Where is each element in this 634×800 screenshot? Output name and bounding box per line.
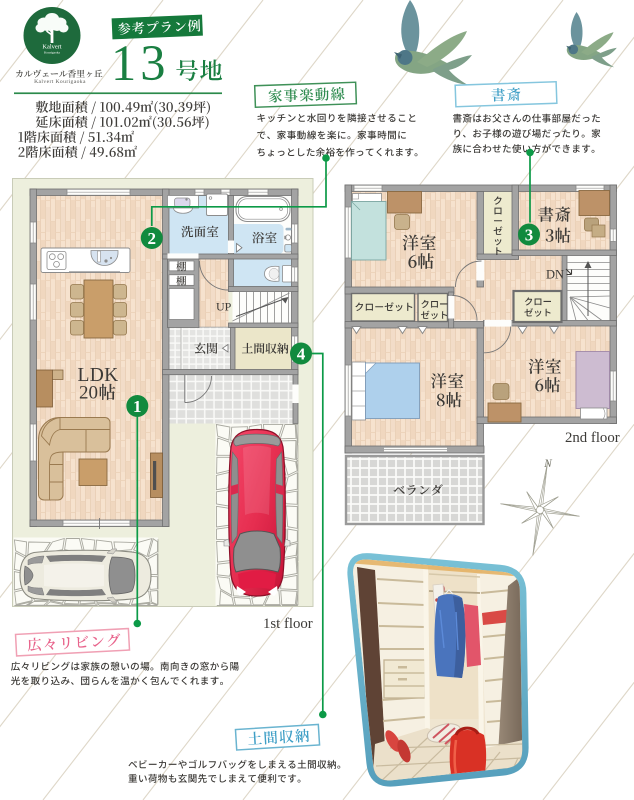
svg-text:Kalvert: Kalvert: [42, 44, 61, 51]
svg-text:20: 20: [79, 383, 98, 404]
svg-text:1: 1: [133, 397, 142, 416]
svg-text:3: 3: [525, 225, 534, 244]
svg-text:1st floor: 1st floor: [263, 616, 313, 632]
svg-text:2: 2: [148, 229, 157, 248]
svg-text:2nd floor: 2nd floor: [565, 430, 620, 446]
svg-text:4: 4: [297, 344, 306, 363]
svg-text:13: 13: [111, 35, 170, 91]
svg-text:N: N: [543, 458, 553, 470]
svg-text:DN: DN: [546, 268, 564, 282]
svg-text:UP: UP: [216, 300, 232, 314]
svg-text:Kourigaoka: Kourigaoka: [44, 51, 61, 55]
svg-text:Kalvert Kourigaoka: Kalvert Kourigaoka: [34, 79, 86, 85]
